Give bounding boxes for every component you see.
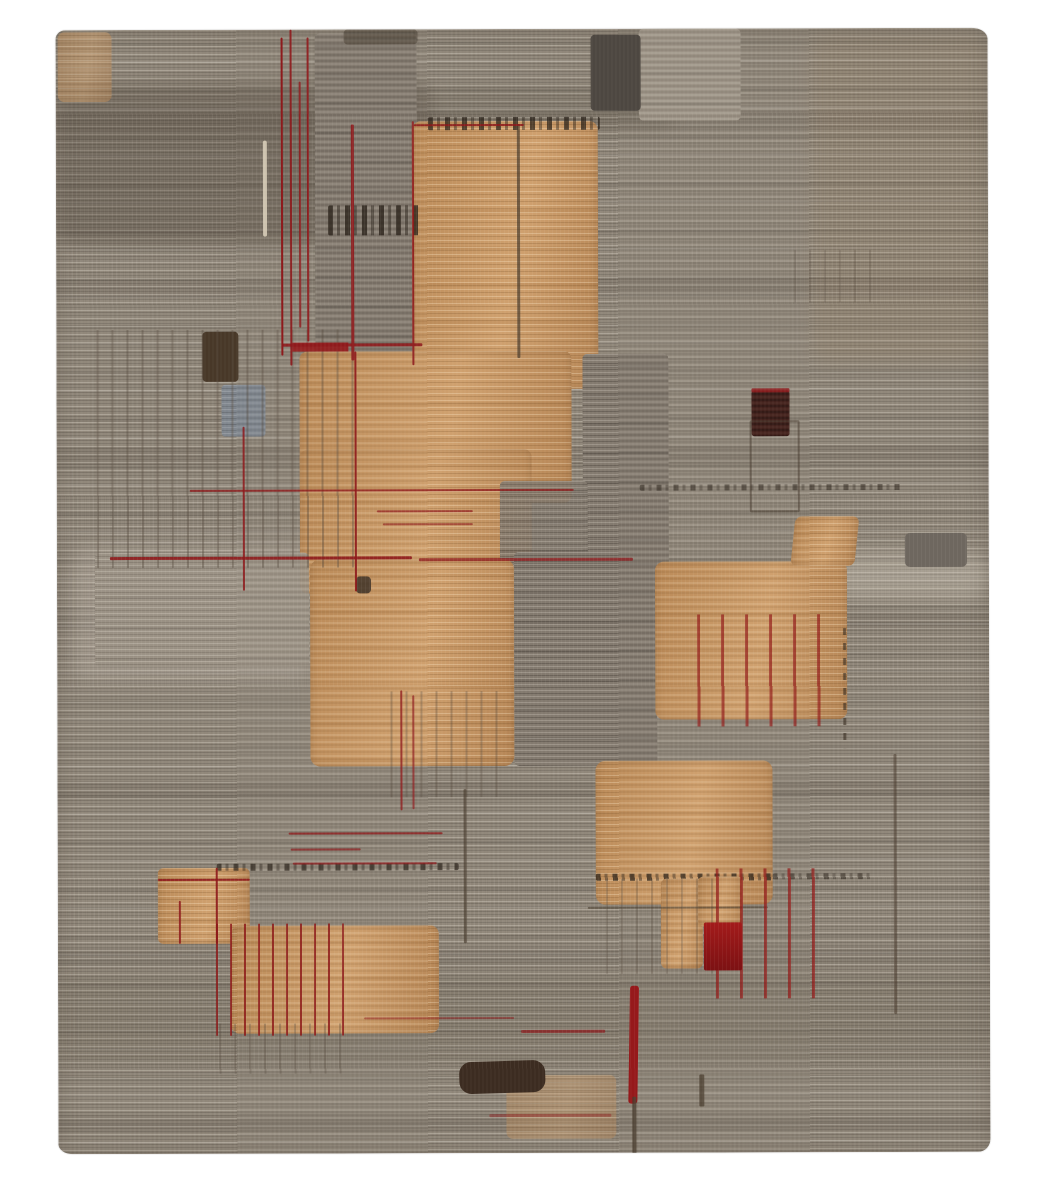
red-line-h10: [364, 1017, 514, 1019]
tan-wash-topleft: [58, 32, 112, 102]
photo-canvas: [0, 0, 1040, 1200]
red-dash-row-maroon-top: [751, 388, 789, 392]
dark-line-right: [893, 754, 897, 1014]
red-line-smalltan-h: [158, 879, 250, 881]
red-stripes-bottomtan: [216, 923, 344, 1035]
red-line-v7: [243, 427, 245, 591]
dark-line-tan1: [517, 124, 521, 358]
red-line-h6: [291, 848, 361, 850]
red-scribble1: [377, 510, 473, 512]
gray-panel-center: [514, 552, 658, 766]
outline-box-right: [750, 420, 800, 512]
red-line-h4b: [419, 558, 633, 562]
speckle-band-left: [328, 205, 420, 235]
red-line-h8: [521, 1030, 605, 1033]
dash-v-right-tan: [843, 628, 846, 748]
light-line-topleft: [263, 141, 267, 237]
dark-block-top: [591, 35, 641, 111]
vstripes-left-grid: [96, 329, 359, 568]
red-line-v2: [290, 30, 293, 366]
shade-zone-bottom-dark: [58, 973, 990, 1065]
gray-panel-leftmid: [95, 553, 309, 668]
speckle-row-right: [640, 484, 902, 491]
dark-glyph: [356, 576, 371, 593]
red-line-h5: [289, 832, 443, 834]
tan-trapezoid: [790, 516, 859, 566]
tan-block-main: [412, 121, 599, 389]
shade-zone-topright-warm: [811, 33, 989, 363]
red-line-v4: [307, 38, 310, 342]
gray-panel-topright: [639, 28, 741, 120]
dark-tail-bottom: [632, 1097, 636, 1155]
dark-line-left: [464, 789, 467, 943]
red-line-v10: [412, 695, 414, 809]
red-bar-bottom: [628, 986, 639, 1104]
red-stripes-righttan: [697, 614, 835, 726]
red-line-h7: [293, 862, 437, 864]
red-line-smalltan-v2: [179, 901, 181, 944]
red-box-solid: [704, 922, 742, 970]
gray-block-right-small: [905, 533, 967, 567]
dark-tick-bottom: [699, 1075, 704, 1107]
red-line-h2: [414, 124, 524, 126]
dark-dash-col-right: [794, 250, 872, 302]
vstripes-below-center: [390, 691, 510, 797]
red-line-h9: [489, 1114, 611, 1117]
red-line-v5: [351, 124, 355, 360]
dark-blob-bottom: [459, 1060, 546, 1094]
red-scribble2: [383, 523, 473, 525]
rug-photo: [56, 28, 991, 1154]
red-line-v9: [400, 690, 402, 810]
dark-strip-top: [344, 29, 418, 44]
